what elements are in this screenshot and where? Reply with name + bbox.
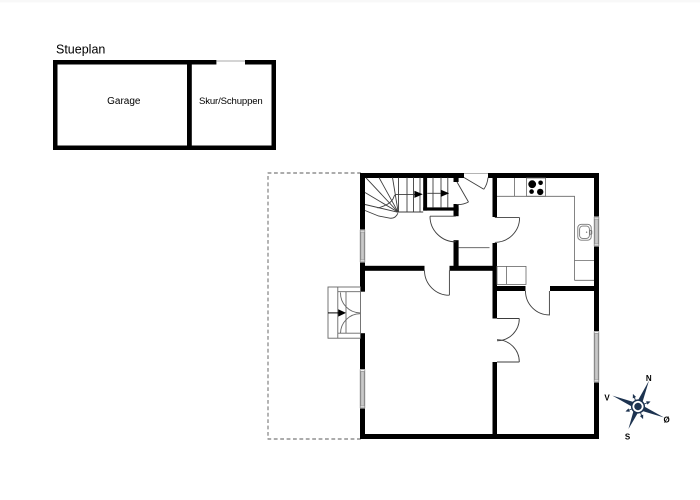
svg-text:S: S [625,433,631,442]
svg-text:N: N [646,374,652,383]
svg-text:Garage: Garage [107,96,141,107]
svg-text:Stueplan: Stueplan [56,43,105,57]
svg-text:Skur/Schuppen: Skur/Schuppen [199,96,263,107]
svg-text:Ø: Ø [663,416,669,425]
svg-text:V: V [604,393,610,402]
